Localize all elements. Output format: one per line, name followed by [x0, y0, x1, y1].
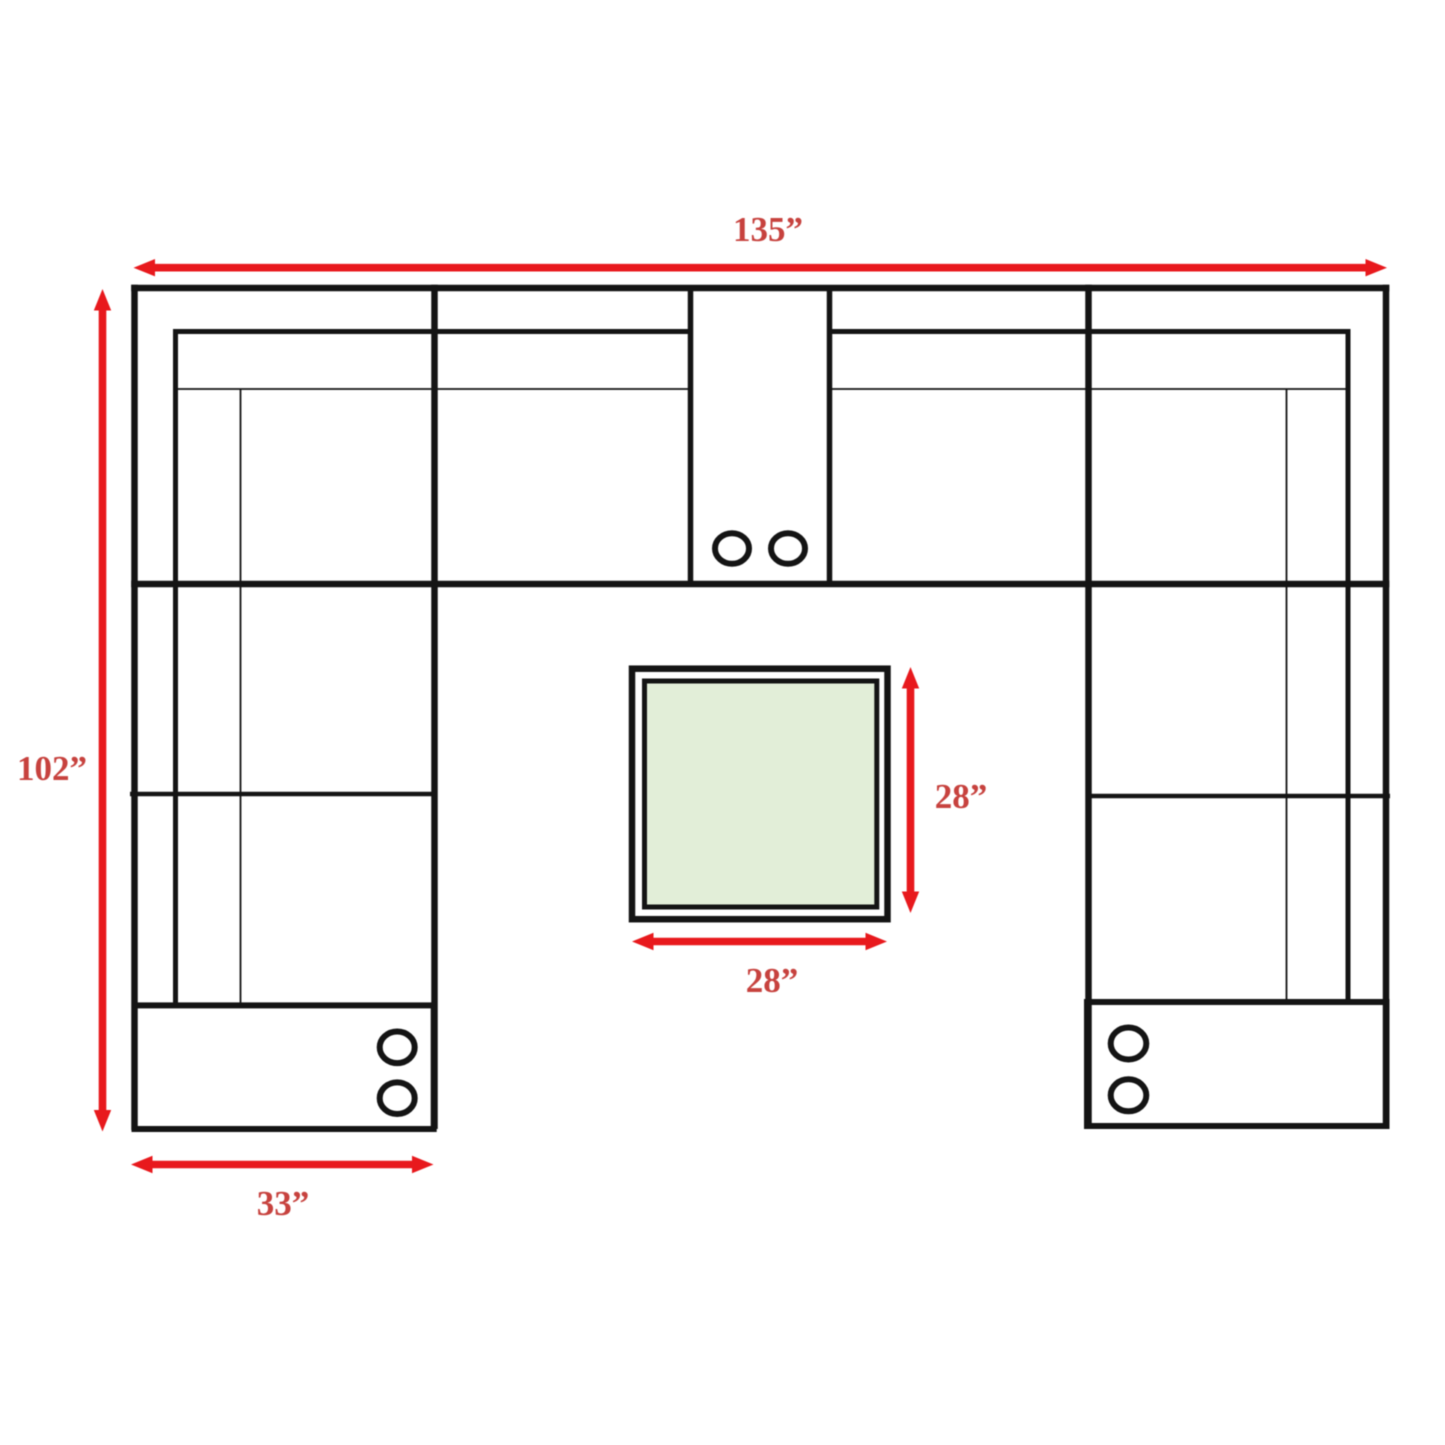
svg-text:33”: 33” — [257, 1184, 310, 1223]
svg-text:135”: 135” — [733, 210, 803, 249]
svg-text:28”: 28” — [935, 777, 988, 816]
svg-text:28”: 28” — [746, 961, 799, 1000]
svg-text:102”: 102” — [17, 749, 87, 788]
